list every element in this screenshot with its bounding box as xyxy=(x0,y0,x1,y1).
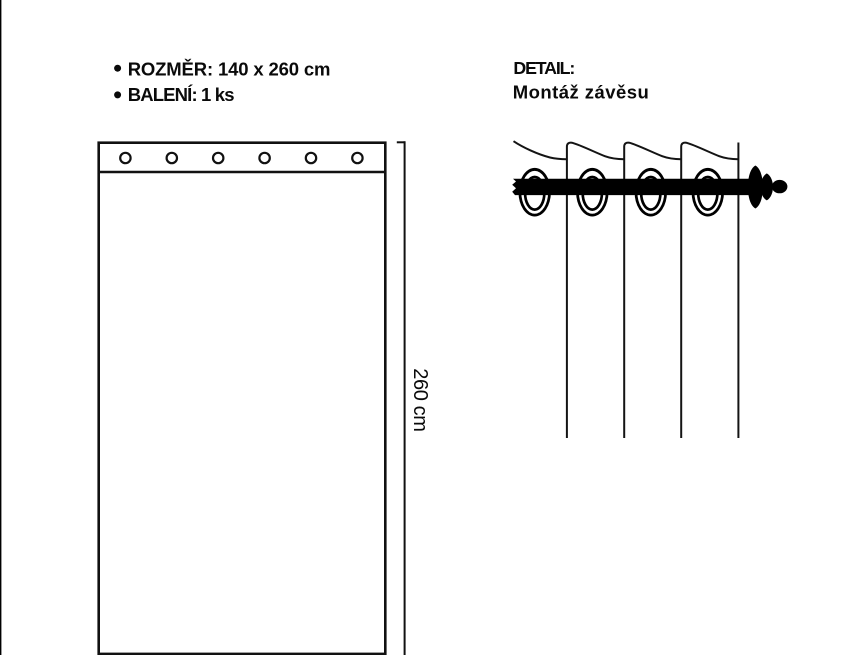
svg-text:ROZMĚR: 140 x 260 cm: ROZMĚR: 140 x 260 cm xyxy=(128,59,331,80)
svg-text:BALENÍ: 1 ks: BALENÍ: 1 ks xyxy=(128,84,235,105)
svg-text:260 cm: 260 cm xyxy=(409,368,431,431)
svg-text:Montáž závěsu: Montáž závěsu xyxy=(513,81,649,102)
svg-text:DETAIL:: DETAIL: xyxy=(513,58,574,78)
